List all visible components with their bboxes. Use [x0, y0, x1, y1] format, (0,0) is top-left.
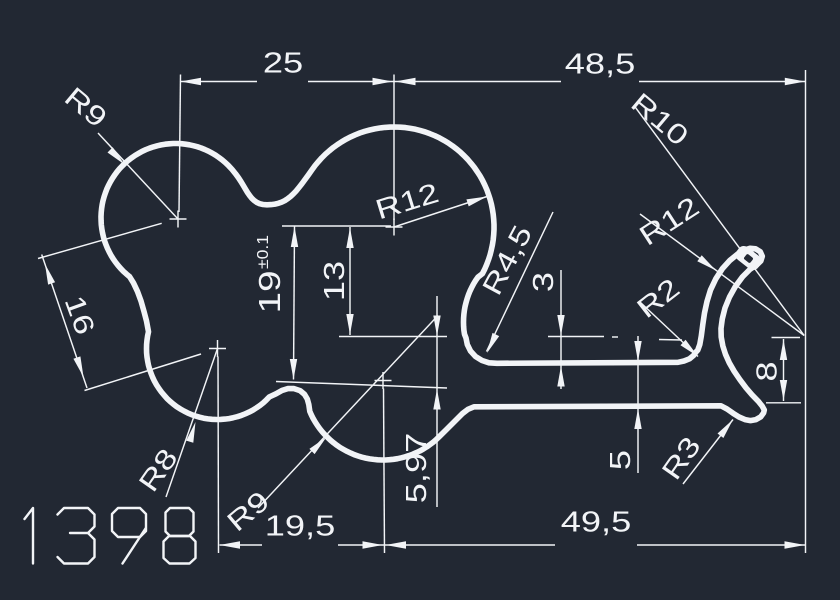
- svg-text:25: 25: [263, 46, 303, 79]
- svg-text:5,97: 5,97: [400, 433, 433, 504]
- svg-text:8: 8: [750, 361, 783, 381]
- svg-text:49,5: 49,5: [561, 505, 632, 538]
- svg-text:19,5: 19,5: [265, 509, 336, 542]
- svg-text:13: 13: [318, 261, 351, 301]
- svg-text:±0.1: ±0.1: [254, 235, 272, 269]
- svg-text:19: 19: [253, 270, 287, 313]
- svg-text:48,5: 48,5: [565, 47, 636, 80]
- svg-text:5: 5: [604, 450, 637, 470]
- svg-text:3: 3: [527, 272, 560, 292]
